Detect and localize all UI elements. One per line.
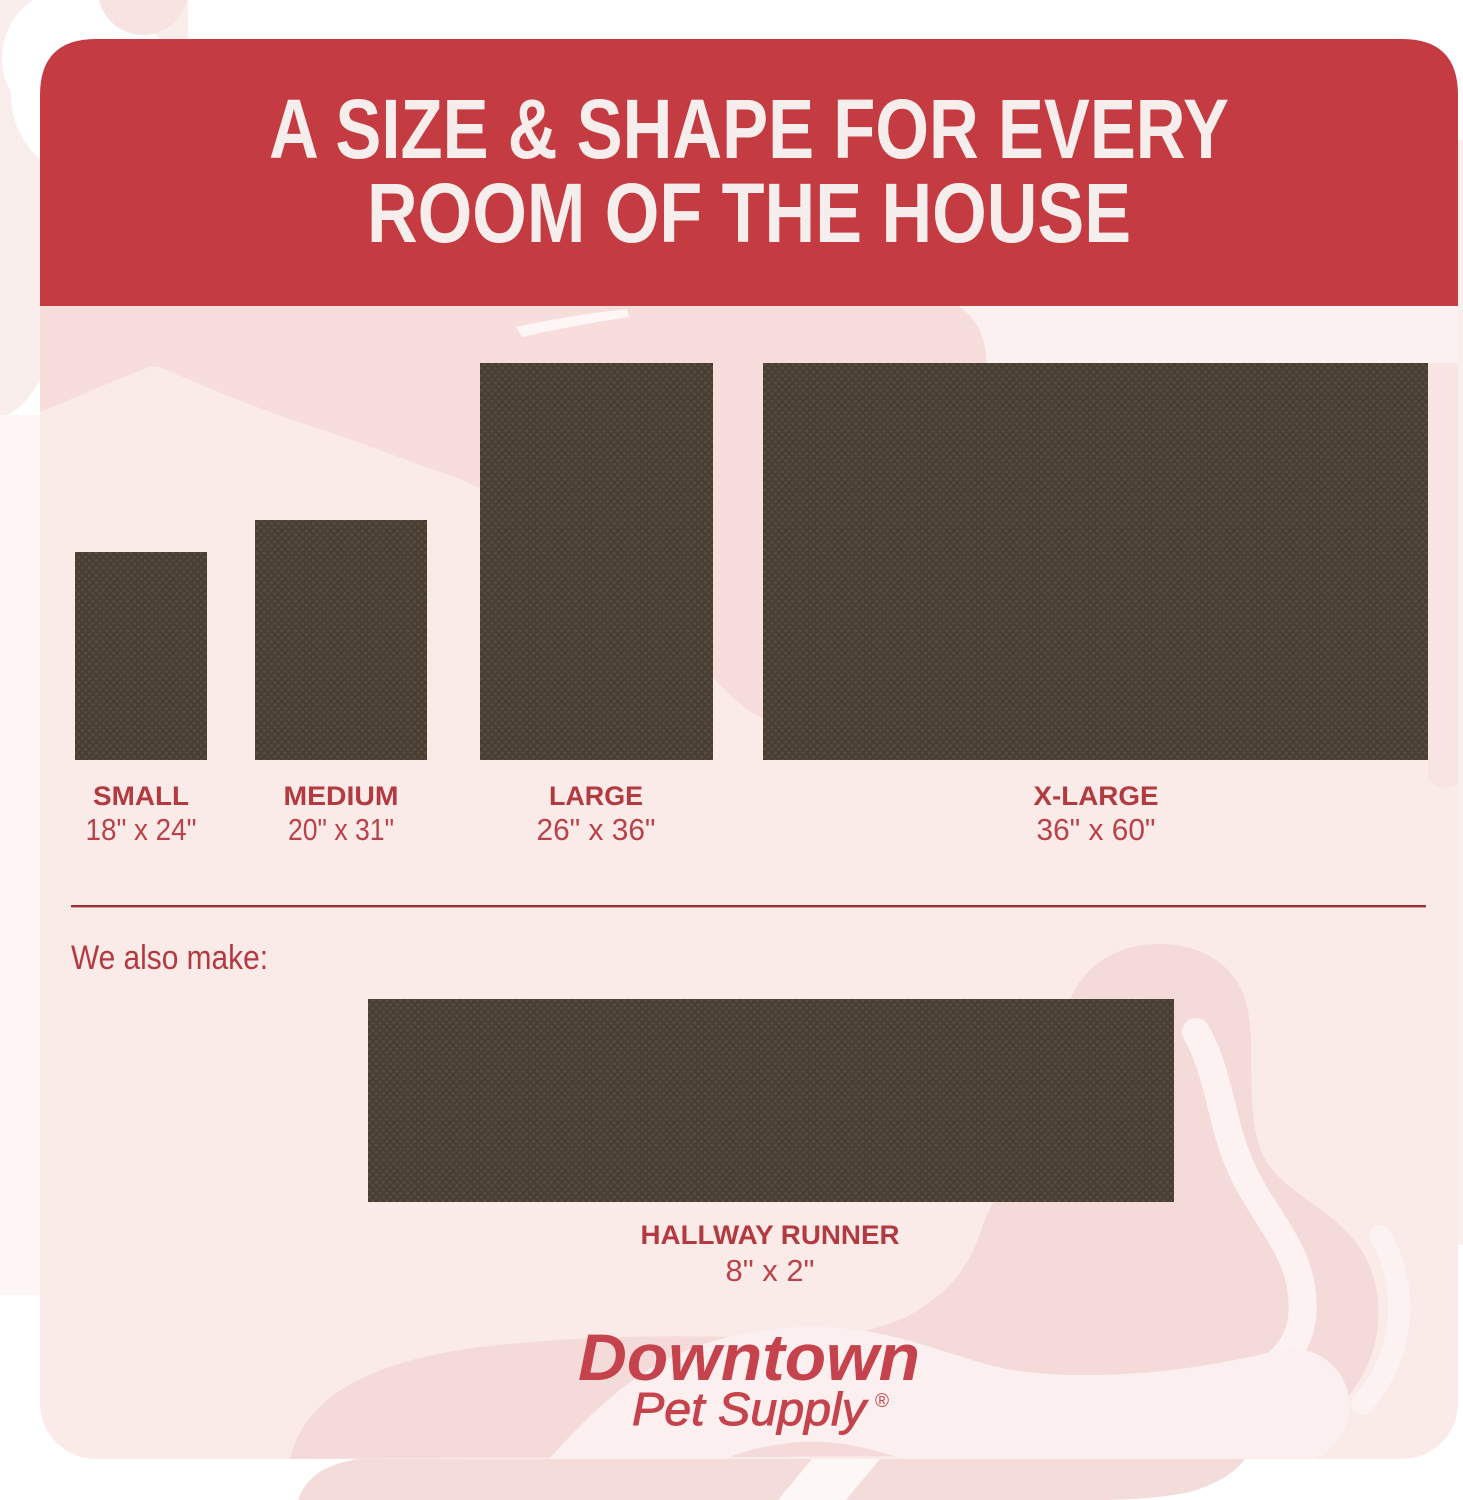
svg-text:20" x 31": 20" x 31" [288,812,394,847]
svg-text:LARGE: LARGE [549,781,643,811]
svg-text:X-LARGE: X-LARGE [1034,781,1159,811]
svg-text:26" x 36": 26" x 36" [537,812,656,847]
svg-text:®: ® [875,1391,889,1412]
svg-text:36" x 60": 36" x 60" [1037,812,1156,847]
svg-text:We also make:: We also make: [71,939,268,977]
svg-text:SMALL: SMALL [93,781,189,811]
svg-text:MEDIUM: MEDIUM [284,781,399,811]
svg-text:HALLWAY RUNNER: HALLWAY RUNNER [641,1220,900,1250]
svg-text:18" x 24": 18" x 24" [86,812,197,847]
svg-text:ROOM OF THE HOUSE: ROOM OF THE HOUSE [367,166,1131,260]
svg-text:A SIZE & SHAPE FOR EVERY: A SIZE & SHAPE FOR EVERY [269,82,1229,176]
svg-text:Pet Supply: Pet Supply [632,1383,869,1435]
svg-text:8" x 2": 8" x 2" [726,1253,815,1288]
